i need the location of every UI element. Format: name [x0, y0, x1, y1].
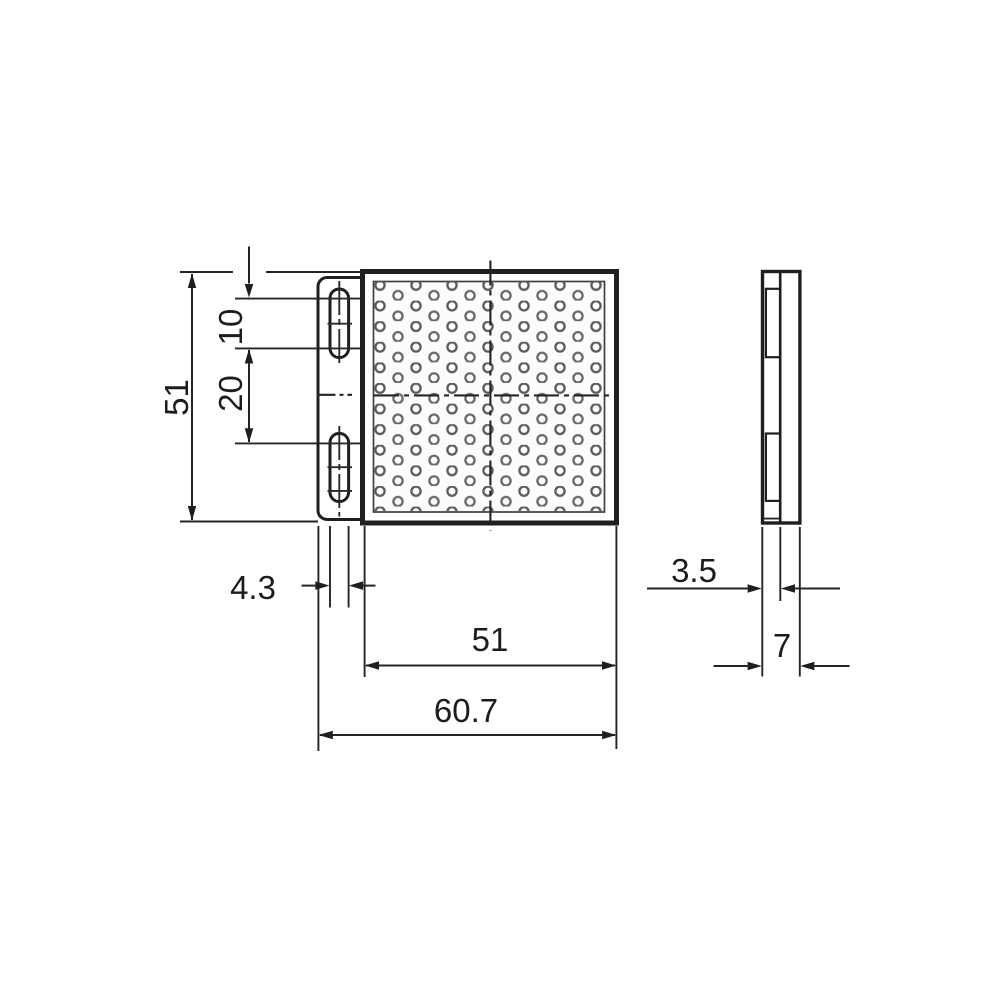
label-overall-height: 51 — [158, 379, 195, 416]
label-slot-width: 4.3 — [230, 569, 276, 606]
drawing-canvas: 51 10 20 4.3 — [0, 0, 1000, 1000]
technical-drawing: 51 10 20 4.3 — [0, 0, 1000, 1000]
label-overall-width: 60.7 — [434, 692, 498, 729]
dim-slot-length: 10 — [212, 247, 253, 346]
dim-slot-pitch: 20 — [212, 349, 253, 443]
label-slot-pitch: 20 — [212, 375, 249, 412]
label-slot-length: 10 — [212, 309, 249, 346]
dim-bracket-thickness: 3.5 — [647, 527, 840, 677]
dim-overall-width: 60.7 — [319, 692, 617, 739]
label-reflector-width: 51 — [472, 621, 509, 658]
front-view: 51 10 20 4.3 — [158, 247, 617, 752]
side-view: 3.5 7 — [647, 272, 850, 677]
label-overall-depth: 7 — [773, 627, 791, 664]
label-bracket-thickness: 3.5 — [671, 552, 717, 589]
dim-slot-width: 4.3 — [230, 526, 375, 751]
dim-overall-depth: 7 — [714, 527, 850, 677]
reflector-hex-pattern — [374, 282, 605, 513]
